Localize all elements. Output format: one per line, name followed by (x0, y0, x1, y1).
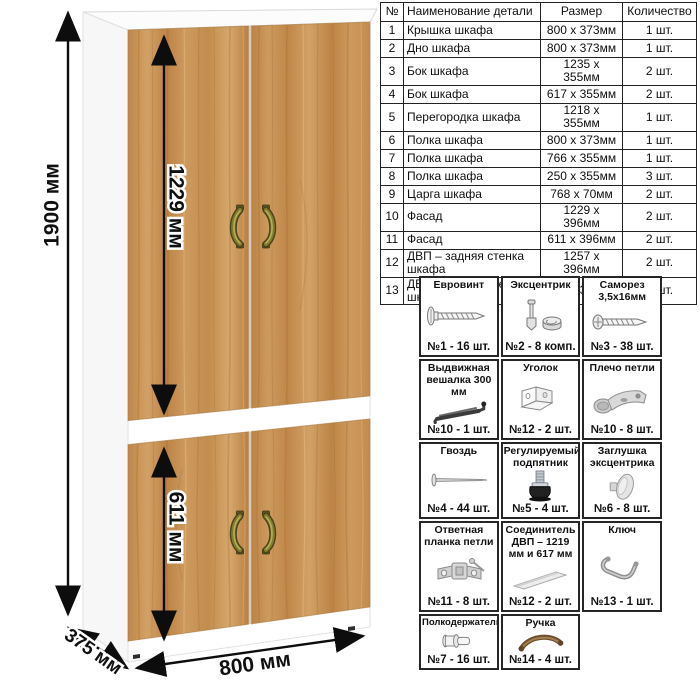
hardware-name: Эксцентрик (504, 280, 578, 292)
part-number: 2 (381, 40, 404, 58)
part-number: 12 (381, 249, 404, 277)
part-number: 13 (381, 277, 404, 305)
hardware-name: Евровинт (422, 280, 496, 292)
col-header-name: Наименование детали (404, 3, 541, 22)
height-dimension-label: 1900 мм (41, 163, 64, 247)
adjustable-foot-icon (520, 470, 560, 504)
part-name: Полка шкафа (404, 149, 541, 167)
table-row: 11Фасад611 х 396мм2 шт. (381, 231, 697, 249)
hardware-name: Выдвижная вешалка 300 мм (422, 363, 496, 398)
table-row: 8Полка шкафа250 х 355мм3 шт. (381, 167, 697, 185)
part-qty: 1 шт. (623, 149, 697, 167)
hardware-qty: №2 - 8 комп. (505, 341, 575, 353)
part-number: 7 (381, 149, 404, 167)
part-size: 250 х 355мм (541, 167, 623, 185)
part-name: Полка шкафа (404, 167, 541, 185)
part-name: Перегородка шкафа (404, 103, 541, 131)
part-number: 1 (381, 22, 404, 40)
part-name: Царга шкафа (404, 185, 541, 203)
hardware-item-eurovint: Евровинт №1 - 16 шт. (419, 276, 499, 357)
hardware-item-hinge-arm: Плечо петли №10 - 8 шт. (582, 359, 662, 440)
wardrobe-diagram: 1900 мм 1229 мм 611 мм 800 мм 375 мм (0, 0, 420, 700)
hardware-grid: Евровинт №1 - 16 шт. Эксцентрик №2 - 8 к… (419, 276, 662, 670)
hardware-qty: №4 - 44 шт. (427, 503, 490, 515)
table-row: 1Крышка шкафа800 х 373мм1 шт. (381, 22, 697, 40)
part-qty: 3 шт. (623, 167, 697, 185)
hardware-name: Плечо петли (585, 363, 659, 375)
hardware-name: Заглушка эксцентрика (585, 446, 659, 470)
parts-table: № Наименование детали Размер Количество … (380, 2, 697, 305)
hardware-item-excentric: Эксцентрик №2 - 8 комп. (501, 276, 581, 357)
hardware-item-samorez: Саморез 3,5х16мм №3 - 38 шт. (582, 276, 662, 357)
table-row: 10Фасад1229 х 396мм2 шт. (381, 203, 697, 231)
hardware-item-zaglushka: Заглушка эксцентрика №6 - 8 шт. (582, 442, 662, 519)
part-number: 3 (381, 58, 404, 86)
hardware-item-podpyatnik: Регулируемый подпятник №5 - 4 шт. (501, 442, 581, 519)
part-size: 768 х 70мм (541, 185, 623, 203)
part-size: 766 х 355мм (541, 149, 623, 167)
part-name: Бок шкафа (404, 85, 541, 103)
part-qty: 2 шт. (623, 231, 697, 249)
part-size: 1218 х 355мм (541, 103, 623, 131)
hardware-item-soedinitel: Соединитель ДВП – 1219 мм и 617 мм №12 -… (501, 521, 581, 612)
hinge-plate-icon (428, 555, 490, 589)
hardware-item-polkoderzhatel: Полкодержатель №7 - 16 шт. (419, 614, 499, 670)
hardware-name: Регулируемый подпятник (504, 446, 578, 470)
part-number: 9 (381, 185, 404, 203)
screw-icon (590, 311, 654, 333)
corner-bracket-icon (512, 383, 568, 415)
part-number: 5 (381, 103, 404, 131)
assembly-sheet: { "diagram": { "dimensions": { "height":… (0, 0, 700, 700)
pullout-hanger-icon (427, 398, 491, 424)
table-row: 12ДВП – задняя стенка шкафа1257 х 396мм2… (381, 249, 697, 277)
shelf-pin-icon (432, 631, 486, 651)
part-name: Полка шкафа (404, 131, 541, 149)
hardware-qty: №10 - 8 шт. (591, 424, 654, 436)
hardware-item-gvozd: Гвоздь №4 - 44 шт. (419, 442, 499, 519)
confirmat-screw-icon (424, 304, 494, 328)
part-name: Бок шкафа (404, 58, 541, 86)
hex-key-icon (594, 551, 650, 581)
part-qty: 2 шт. (623, 249, 697, 277)
hardware-item-klyuch: Ключ №13 - 1 шт. (582, 521, 662, 612)
hardware-qty: №5 - 4 шт. (512, 503, 568, 515)
table-row: 2Дно шкафа800 х 373мм1 шт. (381, 40, 697, 58)
part-number: 11 (381, 231, 404, 249)
part-size: 617 х 355мм (541, 85, 623, 103)
hardware-qty: №12 - 2 шт. (509, 596, 572, 608)
table-row: 3Бок шкафа1235 х 355мм2 шт. (381, 58, 697, 86)
part-size: 800 х 373мм (541, 131, 623, 149)
table-row: 7Полка шкафа766 х 355мм1 шт. (381, 149, 697, 167)
width-dimension-label: 800 мм (218, 648, 292, 681)
top-door-dimension-label: 1229 мм (165, 165, 188, 249)
hardware-qty: №13 - 1 шт. (591, 596, 654, 608)
part-qty: 1 шт. (623, 22, 697, 40)
part-name: Крышка шкафа (404, 22, 541, 40)
hdf-connector-icon (508, 565, 572, 591)
table-row: 6Полка шкафа800 х 373мм1 шт. (381, 131, 697, 149)
part-size: 800 х 373мм (541, 40, 623, 58)
hardware-qty: №11 - 8 шт. (428, 596, 490, 608)
part-qty: 2 шт. (623, 185, 697, 203)
hardware-name: Ключ (585, 525, 659, 537)
hardware-qty: №10 - 1 шт. (427, 424, 490, 436)
nail-icon (427, 471, 491, 489)
table-row: 9Царга шкафа768 х 70мм2 шт. (381, 185, 697, 203)
hardware-qty: №7 - 16 шт. (427, 654, 490, 666)
hardware-qty: №3 - 38 шт. (591, 341, 654, 353)
cabinet-side-panel (83, 12, 128, 662)
hardware-item-ruchka: Ручка №14 - 4 шт. (501, 614, 581, 670)
col-header-number: № (381, 3, 404, 22)
part-qty: 1 шт. (623, 103, 697, 131)
hardware-qty: №6 - 8 шт. (594, 503, 650, 515)
cam-lock-icon (510, 299, 570, 333)
hardware-name: Саморез 3,5х16мм (585, 280, 659, 304)
hardware-empty-cell (582, 614, 662, 670)
hardware-item-ugolok: Уголок №12 - 2 шт. (501, 359, 581, 440)
hardware-item-hanger: Выдвижная вешалка 300 мм №10 - 1 шт. (419, 359, 499, 440)
handle-icon (512, 630, 568, 654)
hardware-item-hinge-plate: Ответная планка петли №11 - 8 шт. (419, 521, 499, 612)
part-size: 800 х 373мм (541, 22, 623, 40)
hardware-name: Гвоздь (422, 446, 496, 458)
parts-table-header-row: № Наименование детали Размер Количество (381, 3, 697, 22)
part-qty: 2 шт. (623, 85, 697, 103)
cam-cover-icon (598, 470, 646, 504)
part-size: 1257 х 396мм (541, 249, 623, 277)
hardware-name: Уголок (504, 363, 578, 375)
hardware-qty: №14 - 4 шт. (509, 654, 572, 666)
table-row: 4Бок шкафа617 х 355мм2 шт. (381, 85, 697, 103)
part-size: 1235 х 355мм (541, 58, 623, 86)
part-size: 1229 х 396мм (541, 203, 623, 231)
part-size: 611 х 396мм (541, 231, 623, 249)
col-header-size: Размер (541, 3, 623, 22)
hardware-name: Ручка (504, 618, 578, 630)
part-number: 10 (381, 203, 404, 231)
part-number: 6 (381, 131, 404, 149)
hinge-arm-icon (590, 382, 654, 416)
part-name: ДВП – задняя стенка шкафа (404, 249, 541, 277)
hardware-name: Соединитель ДВП – 1219 мм и 617 мм (504, 525, 578, 560)
table-row: 5Перегородка шкафа1218 х 355мм1 шт. (381, 103, 697, 131)
hardware-qty: №1 - 16 шт. (427, 341, 490, 353)
part-name: Фасад (404, 231, 541, 249)
part-qty: 1 шт. (623, 40, 697, 58)
hardware-name: Ответная планка петли (422, 525, 496, 549)
part-qty: 2 шт. (623, 203, 697, 231)
bottom-door-dimension-label: 611 мм (165, 492, 188, 563)
part-qty: 2 шт. (623, 58, 697, 86)
hardware-qty: №12 - 2 шт. (509, 424, 572, 436)
hardware-name: Полкодержатель (422, 618, 496, 629)
part-number: 4 (381, 85, 404, 103)
part-qty: 1 шт. (623, 131, 697, 149)
part-name: Дно шкафа (404, 40, 541, 58)
part-name: Фасад (404, 203, 541, 231)
part-number: 8 (381, 167, 404, 185)
col-header-qty: Количество (623, 3, 697, 22)
